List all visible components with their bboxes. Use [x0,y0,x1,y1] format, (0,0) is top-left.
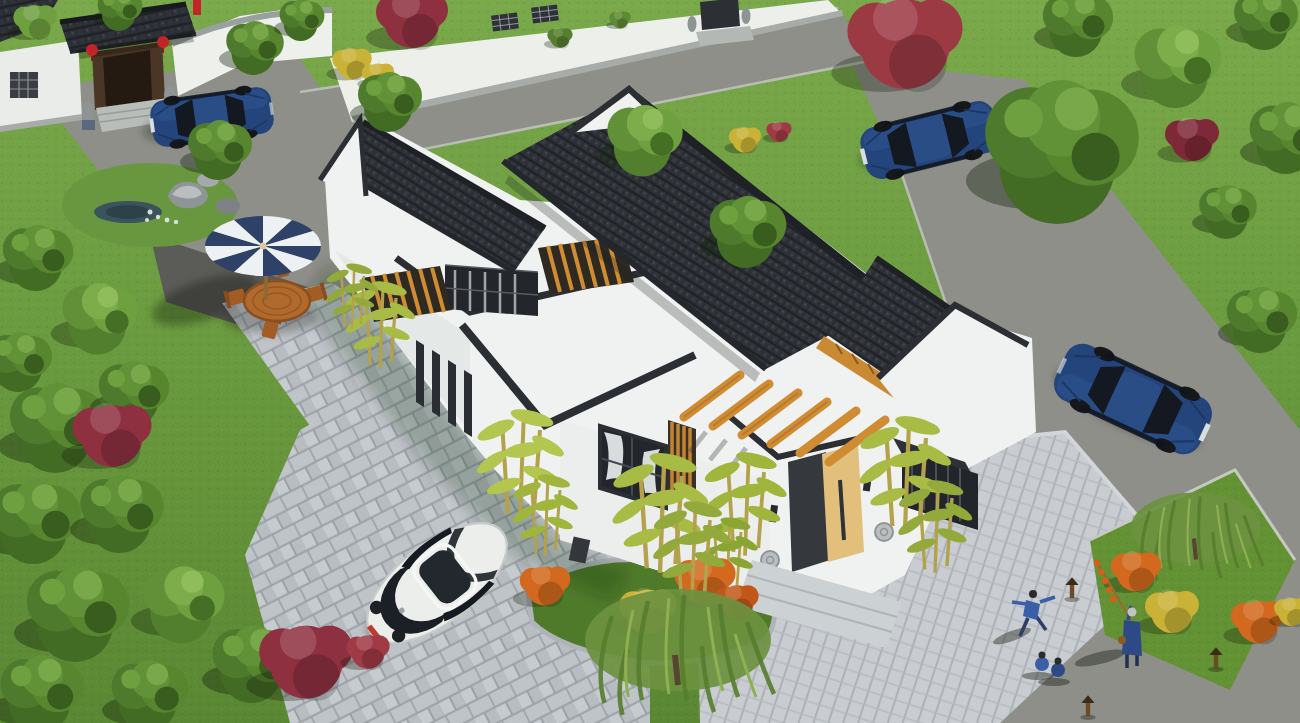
head [1128,608,1137,617]
head [1039,652,1046,659]
body [1035,657,1049,671]
red-lantern [86,44,98,56]
head [1029,590,1037,598]
rendered-scene [0,0,1300,723]
neighbor-doorway [700,0,740,30]
boulder-dark [216,198,240,214]
courtyard-window-band [445,265,538,316]
stone-lion [82,101,94,123]
umbrella-finial [260,243,267,250]
head [1055,658,1062,665]
stone-lion [688,16,697,32]
lattice-window [491,12,519,31]
satchel [1118,636,1126,644]
person-shadow [1038,678,1070,686]
red-banner [193,0,201,15]
lion-pedestal [82,120,95,130]
pond-deep [106,205,150,219]
lattice-window [10,72,38,98]
scene-canvas [0,0,1300,723]
gate-opening [103,50,152,108]
stone-lion [742,8,751,24]
body [1051,663,1065,677]
red-lantern [157,36,169,48]
lattice-window [531,4,559,23]
